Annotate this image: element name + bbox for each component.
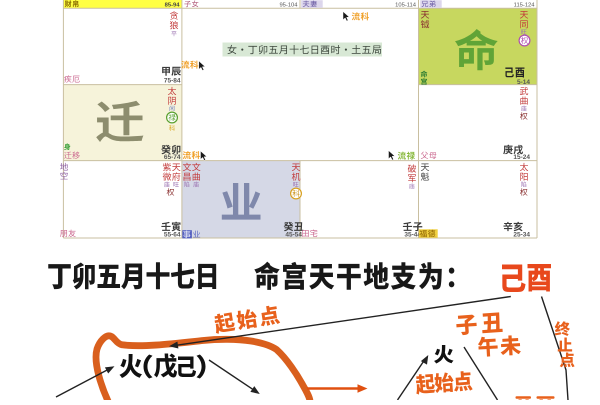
svg-text:55-64: 55-64 <box>164 232 181 239</box>
svg-text:75-84: 75-84 <box>164 78 181 85</box>
svg-text:15-24: 15-24 <box>513 154 530 161</box>
svg-text:95-104: 95-104 <box>279 3 298 9</box>
svg-text:45-54: 45-54 <box>285 232 302 239</box>
svg-text:5-14: 5-14 <box>517 79 530 86</box>
svg-text:65-74: 65-74 <box>164 154 181 161</box>
svg-text:105-114: 105-114 <box>395 3 417 9</box>
svg-text:85-94: 85-94 <box>165 3 181 9</box>
svg-text:115-124: 115-124 <box>514 3 536 9</box>
svg-text:25-34: 25-34 <box>513 232 530 239</box>
svg-text:35-44: 35-44 <box>404 232 421 239</box>
